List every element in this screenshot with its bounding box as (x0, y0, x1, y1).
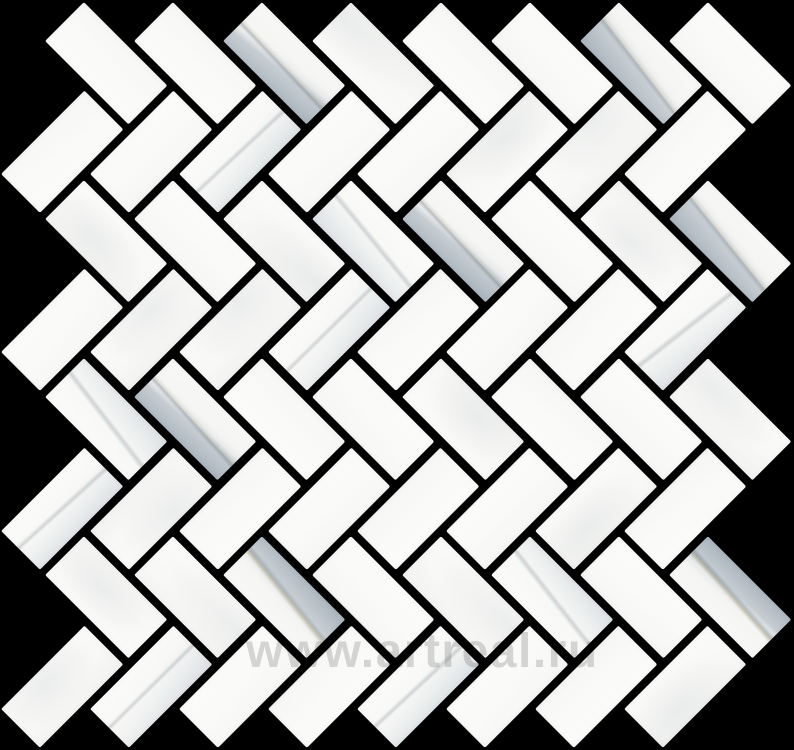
mosaic-tile (535, 269, 657, 391)
mosaic-tile (491, 536, 613, 658)
mosaic-tile (535, 625, 657, 747)
mosaic-tile (491, 358, 613, 480)
mosaic-tile (357, 447, 479, 569)
mosaic-tile (312, 536, 434, 658)
mosaic-tile (179, 447, 301, 569)
mosaic-tile (624, 625, 746, 747)
mosaic-tile (624, 269, 746, 391)
mosaic-tile (223, 2, 345, 124)
mosaic-tile (1, 447, 123, 569)
mosaic-tile (669, 536, 791, 658)
mosaic-tile (312, 2, 434, 124)
mosaic-tile (1, 91, 123, 213)
mosaic-tile (134, 536, 256, 658)
mosaic-tile (669, 358, 791, 480)
mosaic-tile (134, 358, 256, 480)
mosaic-tile (446, 447, 568, 569)
mosaic-tile (179, 625, 301, 747)
mosaic-tile (179, 269, 301, 391)
mosaic-tile (357, 91, 479, 213)
mosaic-tile (402, 180, 524, 302)
mosaic-tile (357, 625, 479, 747)
mosaic-tile (535, 91, 657, 213)
mosaic-tile (580, 180, 702, 302)
mosaic-tile (90, 269, 212, 391)
mosaic-tile (1, 269, 123, 391)
mosaic-tile (580, 536, 702, 658)
mosaic-tile (223, 536, 345, 658)
mosaic-tile (134, 180, 256, 302)
mosaic-sheet: www.artreal.ru (0, 0, 794, 750)
mosaic-tile (491, 180, 613, 302)
mosaic-tile (402, 358, 524, 480)
mosaic-tile (45, 180, 167, 302)
mosaic-tile (402, 536, 524, 658)
mosaic-tile (669, 180, 791, 302)
mosaic-tile (357, 269, 479, 391)
mosaic-tile (402, 2, 524, 124)
mosaic-tile (491, 2, 613, 124)
mosaic-tile (535, 447, 657, 569)
mosaic-tile (446, 625, 568, 747)
mosaic-tile (580, 2, 702, 124)
mosaic-tile (669, 2, 791, 124)
mosaic-tile (268, 91, 390, 213)
mosaic-tile (268, 447, 390, 569)
mosaic-tile (580, 358, 702, 480)
mosaic-tile (624, 91, 746, 213)
mosaic-tile (223, 180, 345, 302)
mosaic-tile (312, 358, 434, 480)
mosaic-tile (446, 91, 568, 213)
mosaic-tile (624, 447, 746, 569)
mosaic-tile (45, 536, 167, 658)
mosaic-tile (179, 91, 301, 213)
mosaic-tile (90, 625, 212, 747)
mosaic-tile (268, 625, 390, 747)
mosaic-tile (45, 2, 167, 124)
mosaic-tile (223, 358, 345, 480)
mosaic-tile (90, 447, 212, 569)
mosaic-tile (90, 91, 212, 213)
mosaic-tile (446, 269, 568, 391)
mosaic-tile (1, 625, 123, 747)
mosaic-tile (312, 180, 434, 302)
mosaic-tile (134, 2, 256, 124)
mosaic-tile (268, 269, 390, 391)
mosaic-tile (45, 358, 167, 480)
